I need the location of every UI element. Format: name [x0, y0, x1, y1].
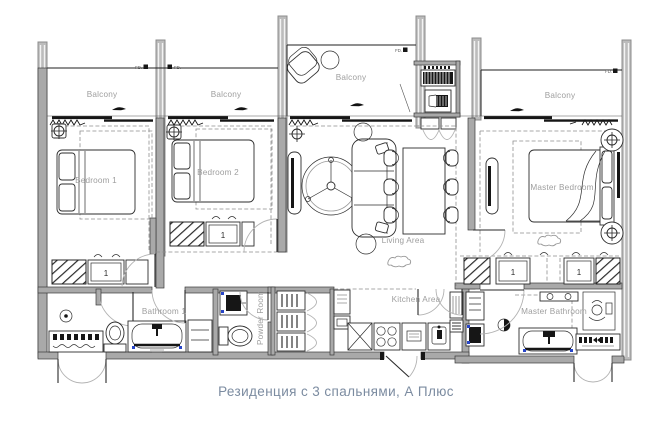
towel-rack-icon: [576, 334, 620, 350]
bedroom2-label: Bedroom 2: [197, 168, 239, 177]
living-area-label: Living Area: [382, 236, 425, 245]
round-rug-icon: [302, 157, 360, 215]
bathroom1-label: Bathroom 1: [142, 307, 187, 316]
tv-console-icon: [486, 158, 498, 214]
counter-cabinet-icon: [402, 323, 426, 350]
bathtub-icon: [128, 321, 186, 352]
fire-damper-marker: FD.: [135, 65, 148, 71]
pet-figure-icon: [388, 256, 411, 267]
kitchen-area-label: Kitchen Area: [392, 295, 441, 304]
master-wardrobe-icon: [464, 253, 620, 285]
hall-closets: [271, 287, 317, 355]
door-swing-arrow-icon: [350, 103, 364, 106]
door-swing-arrow-icon: [234, 107, 248, 110]
balcony1-label: Balcony: [87, 90, 118, 99]
ac-closet: [400, 61, 460, 140]
ac-condenser-icon: [421, 66, 455, 86]
dining-table-icon: [384, 148, 458, 234]
tv-console-icon: [288, 152, 301, 214]
linen-closet-icon: [466, 292, 484, 346]
svg-text:FD.: FD.: [174, 65, 181, 70]
fan-coil-icon: [425, 90, 451, 112]
floor-plan: FD. FD. FD. FD. Balcony Balcony Balcony …: [0, 0, 667, 423]
kitchen-sink-icon: [428, 323, 450, 350]
wardrobe-icon: [52, 255, 148, 285]
balcony4-label: Balcony: [545, 91, 576, 100]
toilet-icon: [219, 326, 252, 346]
plan-caption: Резиденция с 3 спальнями, А Плюс: [218, 384, 454, 399]
living-furniture: [288, 123, 458, 267]
master-bathroom-label: Master Bathroom: [521, 307, 587, 316]
bathroom1-fixtures: [104, 290, 212, 352]
master-bedroom-label: Master Bedroom: [530, 183, 593, 192]
bathtub-icon: [519, 328, 577, 354]
balcony-walls: [47, 45, 622, 121]
pet-figure-icon: [538, 235, 561, 246]
powder-room-label: Powder Room: [256, 291, 265, 345]
side-table-icon: [354, 123, 372, 141]
svg-text:FD.: FD.: [395, 48, 402, 53]
balcony2-label: Balcony: [211, 90, 242, 99]
closet-number: 1: [104, 269, 109, 278]
column: [472, 38, 481, 120]
wardrobe-icon: [170, 217, 254, 247]
shelf-unit-icon: [188, 320, 212, 352]
svg-text:FD.: FD.: [135, 65, 142, 70]
svg-text:FD.: FD.: [605, 69, 612, 74]
door-swing-arrow-icon: [112, 107, 126, 110]
sink-icon: [220, 291, 247, 315]
balcony3-label: Balcony: [336, 73, 367, 82]
column: [622, 40, 631, 360]
master-bathroom-fixtures: [466, 290, 620, 382]
closet-number: 1: [221, 231, 226, 240]
floor-plan-page: FD. FD. FD. FD. Balcony Balcony Balcony …: [0, 0, 667, 423]
bedroom1-furniture: [51, 123, 155, 287]
toilet-icon: [104, 322, 126, 352]
closet-shelves-icon: [277, 291, 305, 351]
fire-damper-marker: FD.: [395, 48, 407, 54]
fridge-icon: [348, 323, 372, 350]
master-bedroom-furniture: [464, 129, 623, 284]
vanity-icon: [540, 292, 578, 301]
appliance-column-icon: [450, 292, 463, 332]
side-table-icon: [321, 51, 339, 69]
balcony-lounge-furniture: [282, 44, 339, 85]
shower-icon: [583, 292, 615, 330]
fire-damper-marker: FD.: [605, 69, 617, 75]
bedroom1-label: Bedroom 1: [75, 176, 117, 185]
stove-icon: [374, 323, 400, 350]
coat-rack-icon: [49, 331, 103, 352]
door-swing-arrow-icon: [510, 108, 524, 111]
closet-number: 1: [577, 268, 582, 277]
fire-damper-marker: FD.: [168, 65, 181, 71]
closet-number: 1: [511, 268, 516, 277]
